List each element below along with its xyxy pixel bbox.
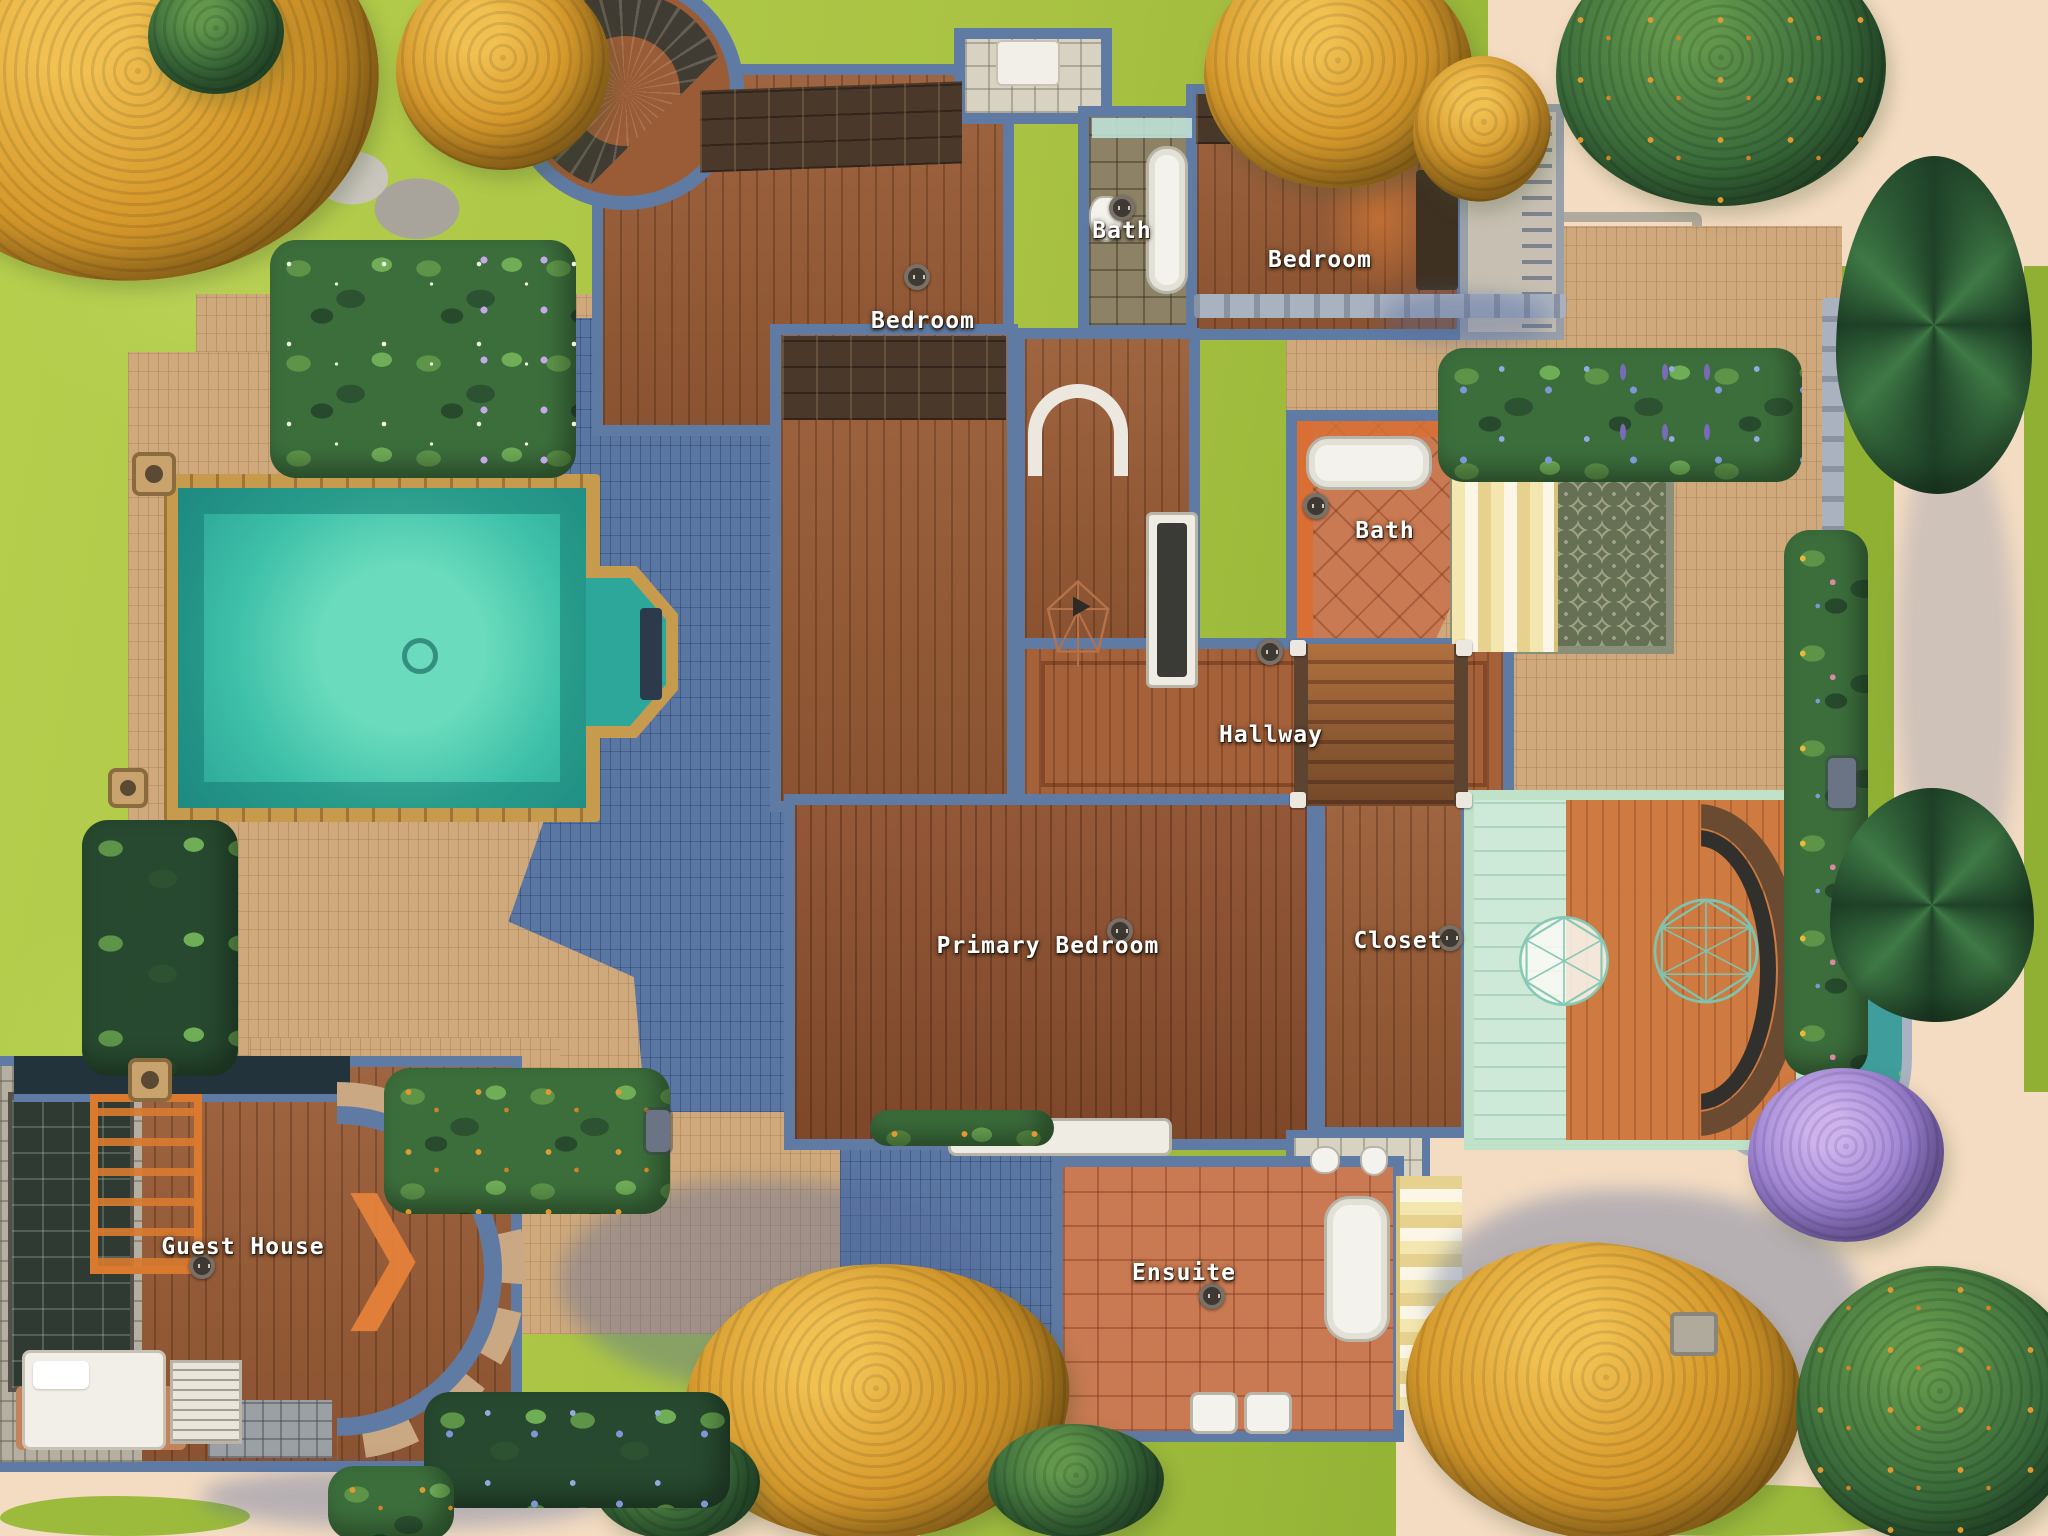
roof-eave-left <box>700 81 962 172</box>
tree-green <box>988 1424 1164 1536</box>
room-label-closet: Closet <box>1353 928 1442 954</box>
bushes-guesthouse-east <box>384 1068 670 1214</box>
torch-pillar[interactable] <box>128 1058 172 1102</box>
hydrangea-flowers <box>424 1392 730 1508</box>
bush-strip-northeast <box>1438 348 1802 482</box>
pillow <box>33 1361 89 1389</box>
planter-soil <box>1157 523 1187 677</box>
geodesic-wireframe-white[interactable] <box>1512 902 1616 1020</box>
nook-sink[interactable] <box>1310 1146 1340 1174</box>
pool-water[interactable] <box>178 488 586 808</box>
room-label-ensuite: Ensuite <box>1132 1260 1236 1286</box>
floor-outlet-icon[interactable] <box>1303 493 1329 519</box>
pool-bench[interactable] <box>640 608 662 700</box>
torch-pillar[interactable] <box>132 452 176 496</box>
tree-shadow <box>1380 292 1550 344</box>
torch-pillar[interactable] <box>108 768 148 808</box>
lilac-flowers <box>454 240 576 478</box>
icosahedron-pendant[interactable] <box>1040 574 1116 674</box>
purple-spikes <box>1602 348 1711 482</box>
floor-outlet-icon[interactable] <box>904 264 930 290</box>
bathtub-ensuite[interactable] <box>1324 1196 1390 1342</box>
geodesic-wireframe-teal[interactable] <box>1648 886 1764 1016</box>
pool-drain <box>402 638 438 674</box>
bath-top-teal-tiles <box>1092 118 1192 138</box>
hedge-pool-north <box>270 240 576 478</box>
room-label-primary-bedroom: Primary Bedroom <box>937 933 1160 959</box>
room-label-bath-top: Bath <box>1092 218 1151 244</box>
planter-white[interactable] <box>1146 512 1198 688</box>
floor-outlet-icon[interactable] <box>1199 1283 1225 1309</box>
hedge-pool-west <box>82 820 238 1076</box>
room-label-bath-middle: Bath <box>1355 518 1414 544</box>
guest-dresser[interactable] <box>170 1360 242 1444</box>
tree-lilac <box>1748 1068 1944 1242</box>
room-label-hallway: Hallway <box>1219 722 1323 748</box>
bushes-guesthouse-south <box>424 1392 730 1508</box>
room-label-guest-house: Guest House <box>161 1234 324 1260</box>
stone-planter[interactable] <box>1670 1312 1718 1356</box>
marigold-bush <box>328 1466 454 1536</box>
lamp-post[interactable] <box>1828 758 1856 808</box>
room-label-bedroom-left: Bedroom <box>871 308 975 334</box>
stair-newel <box>1456 640 1472 656</box>
sims-floorplan-scene: ❯ <box>0 0 2048 1536</box>
bathtub-middle[interactable] <box>1306 436 1432 490</box>
stair-newel <box>1456 792 1472 808</box>
nook-toilet[interactable] <box>1360 1146 1388 1176</box>
shower-door[interactable] <box>996 40 1060 86</box>
room-primary-bedroom[interactable] <box>784 794 1318 1150</box>
orange-flecks <box>384 1068 670 1214</box>
marigold-dots <box>328 1466 454 1536</box>
room-label-bedroom-right: Bedroom <box>1268 247 1372 273</box>
floor-outlet-icon[interactable] <box>1257 639 1283 665</box>
bathtub[interactable] <box>1146 146 1188 294</box>
stair-newel <box>1290 792 1306 808</box>
marigold-dots <box>870 1110 1054 1146</box>
guest-bed[interactable] <box>22 1350 166 1450</box>
paneled-wall-band <box>782 336 1006 420</box>
ensuite-sink[interactable] <box>1244 1392 1292 1434</box>
flower-box <box>870 1110 1054 1146</box>
lamp-post[interactable] <box>646 1110 670 1152</box>
ensuite-sink[interactable] <box>1190 1392 1238 1434</box>
arch-sculpture[interactable] <box>1028 384 1128 476</box>
room-closet[interactable] <box>1314 794 1472 1138</box>
stair-newel <box>1290 640 1306 656</box>
